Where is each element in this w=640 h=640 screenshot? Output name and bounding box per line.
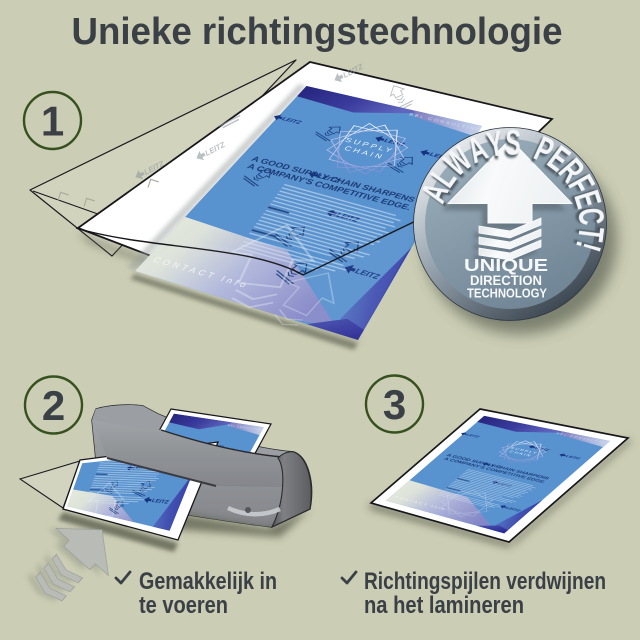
svg-text:Gemakkelijk in: Gemakkelijk in <box>139 568 277 595</box>
svg-text:1: 1 <box>41 98 64 145</box>
svg-text:na het lamineren: na het lamineren <box>364 592 524 619</box>
svg-text:3: 3 <box>383 381 406 428</box>
svg-text:C: C <box>570 206 610 226</box>
svg-text:te voeren: te voeren <box>139 592 228 619</box>
svg-text:Unieke richtingstechnologie: Unieke richtingstechnologie <box>72 11 563 53</box>
svg-text:Richtingspijlen verdwijnen: Richtingspijlen verdwijnen <box>364 568 606 595</box>
svg-text:2: 2 <box>42 382 65 429</box>
svg-text:TECHNOLOGY: TECHNOLOGY <box>467 287 548 301</box>
svg-text:S: S <box>504 124 521 163</box>
